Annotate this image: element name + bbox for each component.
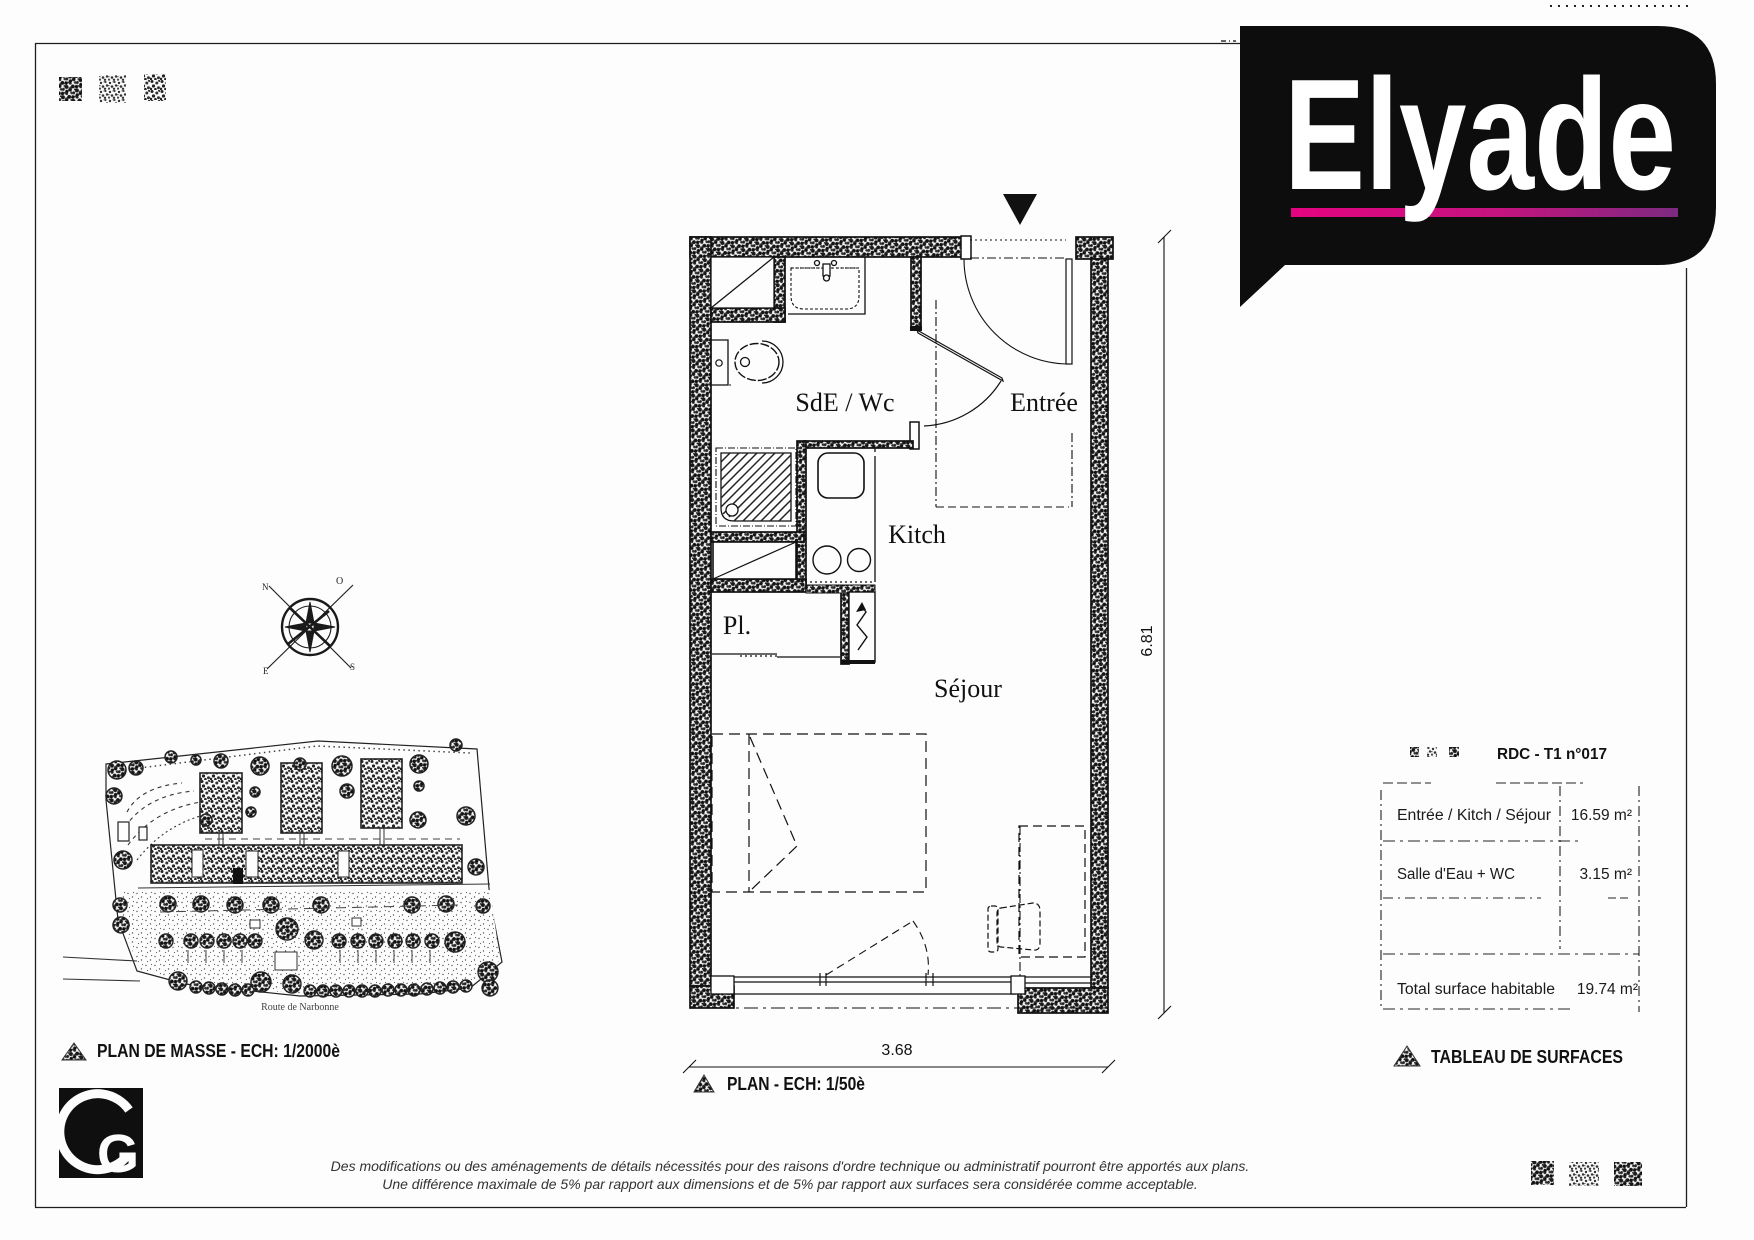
svg-text:G: G — [97, 1124, 139, 1184]
svg-text:Total surface habitable: Total surface habitable — [1397, 981, 1555, 998]
svg-text:E: E — [263, 666, 269, 676]
svg-text:3.68: 3.68 — [881, 1042, 912, 1059]
svg-text:Entrée: Entrée — [1010, 388, 1078, 417]
svg-text:Séjour: Séjour — [934, 674, 1002, 703]
svg-text:RDC - T1 n°017: RDC - T1 n°017 — [1497, 746, 1607, 763]
svg-text:19.74 m²: 19.74 m² — [1577, 981, 1638, 998]
svg-text:N: N — [262, 582, 269, 592]
svg-text:TABLEAU DE SURFACES: TABLEAU DE SURFACES — [1431, 1047, 1623, 1067]
svg-text:16.59 m²: 16.59 m² — [1571, 807, 1632, 824]
svg-text:Entrée / Kitch / Séjour: Entrée / Kitch / Séjour — [1397, 807, 1551, 824]
svg-text:3.15 m²: 3.15 m² — [1579, 866, 1632, 883]
svg-text:PLAN - ECH: 1/50è: PLAN - ECH: 1/50è — [727, 1074, 865, 1094]
svg-text:6.81: 6.81 — [1139, 625, 1156, 656]
svg-text:Pl.: Pl. — [723, 611, 751, 640]
svg-text:PLAN DE MASSE - ECH: 1/2000è: PLAN DE MASSE - ECH: 1/2000è — [97, 1041, 340, 1061]
svg-text:O: O — [336, 576, 343, 587]
svg-text:Kitch: Kitch — [888, 520, 946, 549]
svg-text:Elyade: Elyade — [1284, 47, 1676, 223]
svg-text:SdE / Wc: SdE / Wc — [795, 388, 894, 417]
svg-text:Salle d'Eau + WC: Salle d'Eau + WC — [1397, 866, 1515, 883]
svg-text:Une différence maximale de 5%: Une différence maximale de 5% par rappor… — [382, 1176, 1198, 1192]
svg-text:S: S — [350, 662, 355, 672]
svg-text:Des modifications ou des aména: Des modifications ou des aménagements de… — [331, 1158, 1250, 1174]
svg-text:Route de Narbonne: Route de Narbonne — [261, 1002, 339, 1013]
